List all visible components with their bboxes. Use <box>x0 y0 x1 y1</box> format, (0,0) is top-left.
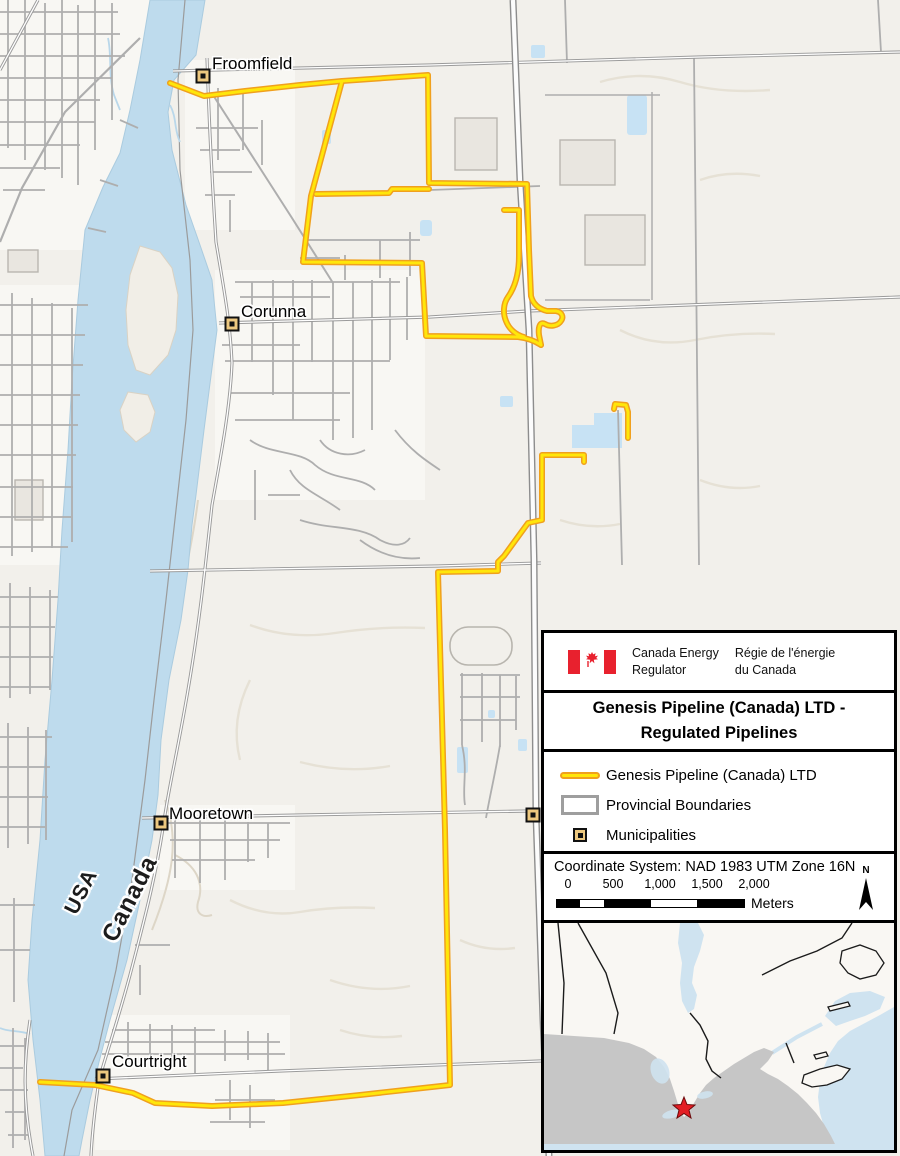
inset-map-canvas <box>544 923 894 1144</box>
scale-tick: 1,000 <box>644 877 675 891</box>
legend-panel: Canada Energy Regulator Régie de l'énerg… <box>541 630 897 1153</box>
scale-section: Coordinate System: NAD 1983 UTM Zone 16N… <box>544 851 894 920</box>
north-label: N <box>854 866 878 876</box>
scale-unit: Meters <box>751 895 794 911</box>
legend-item-pipeline: Genesis Pipeline (Canada) LTD <box>554 760 894 790</box>
municipality-marker-corunna <box>226 318 239 331</box>
map-document: Froomfield Corunna Mooretown Courtright … <box>0 0 900 1156</box>
municipality-marker-froomfield <box>197 70 210 83</box>
map-title: Genesis Pipeline (Canada) LTD - Regulate… <box>544 690 894 749</box>
scale-tick: 2,000 <box>738 877 769 891</box>
agency-header: Canada Energy Regulator Régie de l'énerg… <box>544 633 894 690</box>
scale-tick: 1,500 <box>691 877 722 891</box>
legend-items: Genesis Pipeline (Canada) LTD Provincial… <box>544 749 894 851</box>
legend-item-municipalities: Municipalities <box>554 820 894 850</box>
label-froomfield: Froomfield <box>212 54 292 74</box>
legend-item-label: Municipalities <box>606 827 696 844</box>
agency-name-fr: Régie de l'énergie du Canada <box>735 645 835 678</box>
label-corunna: Corunna <box>241 302 306 322</box>
agency-name-en: Canada Energy Regulator <box>632 645 719 678</box>
municipality-marker-courtright <box>97 1070 110 1083</box>
label-courtright: Courtright <box>112 1052 187 1072</box>
north-arrow-icon: N <box>854 866 878 917</box>
pipeline-swatch-icon <box>554 772 606 779</box>
label-mooretown: Mooretown <box>169 804 253 824</box>
municipality-marker-hidden <box>527 809 540 822</box>
scale-tick: 500 <box>603 877 624 891</box>
municipality-marker-mooretown <box>155 817 168 830</box>
coordinate-system-text: Coordinate System: NAD 1983 UTM Zone 16N <box>554 859 884 875</box>
provincial-boundary-swatch-icon <box>554 795 606 815</box>
legend-item-provincial-boundaries: Provincial Boundaries <box>554 790 894 820</box>
legend-item-label: Genesis Pipeline (Canada) LTD <box>606 767 817 784</box>
canada-flag-icon <box>568 650 616 674</box>
municipality-swatch-icon <box>554 828 606 842</box>
inset-map <box>544 920 894 1150</box>
legend-item-label: Provincial Boundaries <box>606 797 751 814</box>
scale-tick-labels: 0 500 1,000 1,500 2,000 <box>554 877 884 892</box>
scale-bar <box>556 899 745 908</box>
scale-tick: 0 <box>565 877 572 891</box>
